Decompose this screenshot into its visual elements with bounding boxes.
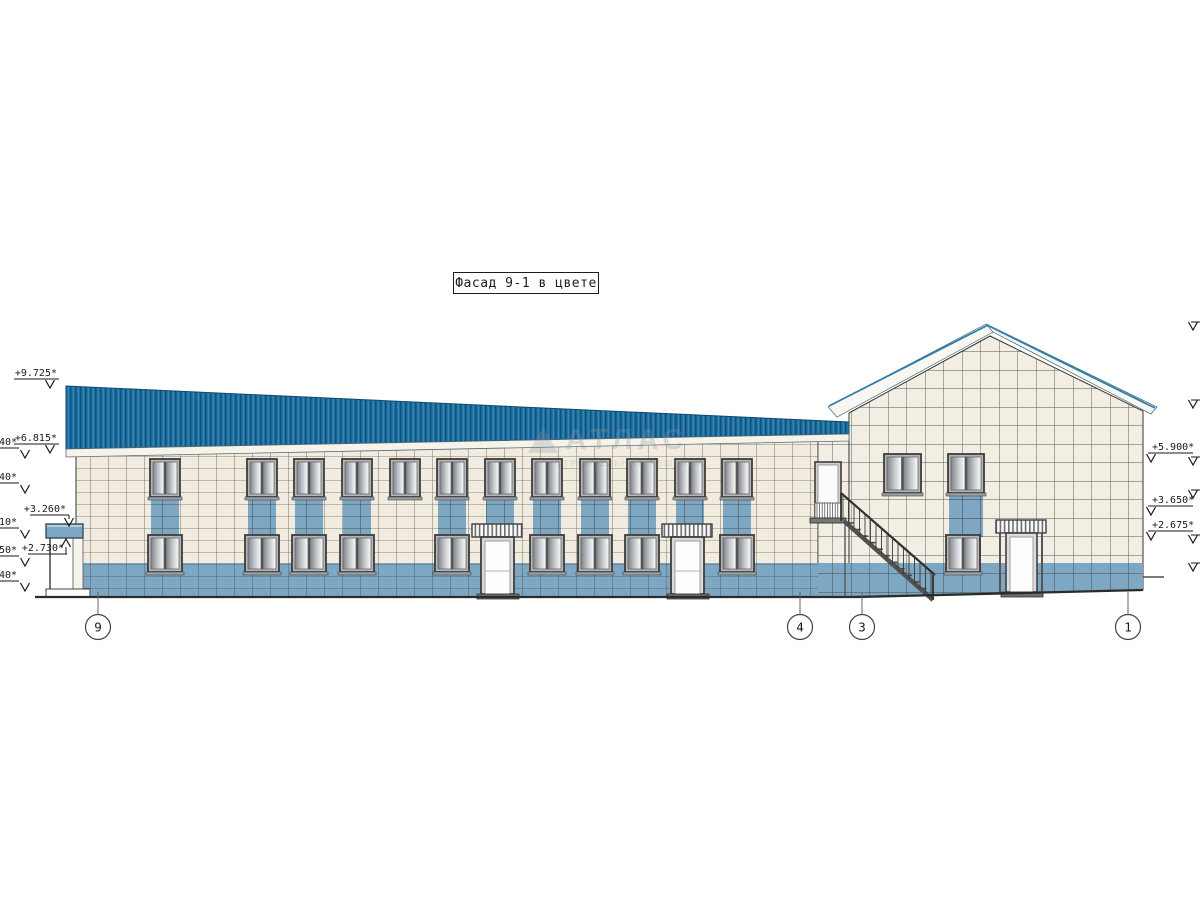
window-sill bbox=[388, 497, 422, 500]
elevation-mark-fragment bbox=[1189, 400, 1200, 408]
axis-bubble: 3 bbox=[850, 592, 875, 640]
window-sash bbox=[297, 462, 308, 494]
window-sash bbox=[440, 462, 451, 494]
window-sash bbox=[310, 462, 321, 494]
window-sill bbox=[433, 572, 471, 575]
window-mullion bbox=[356, 538, 358, 570]
upper-window bbox=[483, 459, 517, 500]
window-sash bbox=[964, 538, 977, 569]
axis-bubble: 4 bbox=[788, 592, 813, 640]
level-arrow-icon bbox=[21, 530, 30, 538]
door-leaf bbox=[485, 541, 510, 594]
window-sash bbox=[153, 462, 164, 494]
lower-window bbox=[623, 535, 661, 575]
window-sill bbox=[528, 572, 566, 575]
axis-label: 4 bbox=[796, 620, 804, 635]
axis-bubble: 1 bbox=[1116, 592, 1141, 640]
window-mullion bbox=[261, 462, 263, 495]
window-mullion bbox=[641, 538, 643, 570]
window-mullion bbox=[962, 538, 964, 570]
window-sill bbox=[946, 493, 986, 496]
window-sash bbox=[887, 457, 902, 490]
upper-window bbox=[340, 459, 374, 500]
level-arrow-icon bbox=[21, 558, 30, 566]
window-mullion bbox=[308, 538, 310, 570]
window-sash bbox=[548, 462, 559, 494]
window-sash bbox=[166, 462, 177, 494]
window-sash bbox=[295, 538, 308, 569]
window-sash bbox=[263, 462, 274, 494]
window-sash bbox=[904, 457, 919, 490]
elevation-mark: +3.650* bbox=[1147, 495, 1195, 515]
window-sash bbox=[345, 462, 356, 494]
platform-rail-panel bbox=[815, 503, 841, 519]
window-sash bbox=[581, 538, 594, 569]
upper-window bbox=[388, 459, 422, 500]
window-sill bbox=[146, 572, 184, 575]
window-mullion bbox=[594, 538, 596, 570]
level-arrow-icon bbox=[1147, 507, 1156, 515]
elevation-label: 10* bbox=[0, 517, 17, 528]
stair-door-leaf bbox=[818, 465, 838, 503]
window-sill bbox=[338, 572, 376, 575]
window-mullion bbox=[451, 462, 453, 495]
window-sash bbox=[488, 462, 499, 494]
window-sash bbox=[501, 462, 512, 494]
axis-bubble: 9 bbox=[86, 592, 111, 640]
elevation-label: +2.675* bbox=[1152, 520, 1194, 531]
level-arrow-icon bbox=[1147, 454, 1156, 462]
window-mullion bbox=[546, 462, 548, 495]
door-leaf bbox=[1010, 537, 1033, 592]
window-sill bbox=[530, 497, 564, 500]
window-mullion bbox=[736, 538, 738, 570]
upper-window bbox=[530, 459, 564, 500]
level-arrow-icon bbox=[21, 450, 30, 458]
window-mullion bbox=[689, 462, 691, 495]
lower-window bbox=[718, 535, 756, 575]
upper-window bbox=[245, 459, 279, 500]
window-mullion bbox=[164, 462, 166, 495]
window-sash bbox=[438, 538, 451, 569]
window-mullion bbox=[499, 462, 501, 495]
window-sash bbox=[949, 538, 962, 569]
window-mullion bbox=[965, 457, 967, 491]
level-arrow-icon bbox=[21, 485, 30, 493]
window-sash bbox=[248, 538, 261, 569]
window-sill bbox=[243, 572, 281, 575]
elevation-label: +6.815* bbox=[15, 433, 57, 444]
upper-window bbox=[673, 459, 707, 500]
facade-drawing: +9.725*+6.815*40*40*10*50*40*+5.900*+3.6… bbox=[0, 0, 1200, 900]
elevation-label: +5.900* bbox=[1152, 442, 1194, 453]
level-arrow-icon bbox=[46, 445, 55, 453]
elevation-mark-fragment: 40* bbox=[0, 472, 30, 493]
window-sill bbox=[673, 497, 707, 500]
window-sill bbox=[718, 572, 756, 575]
upper-window bbox=[435, 459, 469, 500]
level-arrow-icon bbox=[1147, 532, 1156, 540]
window-sash bbox=[738, 538, 751, 569]
lower-window bbox=[290, 535, 328, 575]
window-sash bbox=[151, 538, 164, 569]
window-sash bbox=[533, 538, 546, 569]
drawing-title: Фасад 9-1 в цвете bbox=[453, 272, 599, 294]
axis-label: 9 bbox=[94, 620, 102, 635]
door-canopy bbox=[996, 520, 1046, 533]
level-arrow-icon bbox=[1189, 400, 1198, 408]
level-arrow-icon bbox=[1189, 322, 1198, 330]
gable-lower-window bbox=[944, 535, 982, 575]
elevation-mark: +3.260* bbox=[24, 504, 74, 526]
elevation-mark-fragment bbox=[1189, 457, 1200, 465]
window-sash bbox=[643, 462, 654, 494]
elevation-mark: +5.900* bbox=[1147, 442, 1195, 462]
level-arrow-icon bbox=[1189, 535, 1198, 543]
door-leaf bbox=[675, 541, 700, 594]
upper-window bbox=[148, 459, 182, 500]
window-sill bbox=[882, 493, 923, 496]
window-sash bbox=[967, 457, 981, 490]
elevation-label: 40* bbox=[0, 472, 17, 483]
elevation-mark-fragment bbox=[1189, 535, 1200, 543]
window-sill bbox=[148, 497, 182, 500]
window-sash bbox=[583, 462, 594, 494]
window-sill bbox=[578, 497, 612, 500]
upper-window bbox=[625, 459, 659, 500]
window-sill bbox=[290, 572, 328, 575]
window-sash bbox=[166, 538, 179, 569]
window-sash bbox=[628, 538, 641, 569]
elevation-label: +2.730* bbox=[22, 543, 64, 554]
elevation-label: +3.260* bbox=[24, 504, 66, 515]
level-arrow-icon bbox=[1189, 457, 1198, 465]
window-sill bbox=[340, 497, 374, 500]
window-sash bbox=[406, 462, 417, 494]
window-sash bbox=[250, 462, 261, 494]
window-sash bbox=[738, 462, 749, 494]
porch-step bbox=[46, 589, 90, 597]
lower-window bbox=[528, 535, 566, 575]
window-sill bbox=[245, 497, 279, 500]
window-mullion bbox=[902, 457, 904, 491]
elevation-mark: +9.725* bbox=[14, 368, 59, 388]
window-sash bbox=[453, 538, 466, 569]
axis-label: 3 bbox=[858, 620, 866, 635]
elevation-mark: +2.675* bbox=[1147, 520, 1195, 540]
window-sill bbox=[576, 572, 614, 575]
window-sill bbox=[292, 497, 326, 500]
gable-upper-window bbox=[882, 454, 923, 496]
window-mullion bbox=[546, 538, 548, 570]
window-mullion bbox=[164, 538, 166, 570]
elevation-mark-fragment bbox=[1189, 563, 1200, 571]
window-sash bbox=[548, 538, 561, 569]
window-sash bbox=[358, 538, 371, 569]
lower-window bbox=[338, 535, 376, 575]
lower-window bbox=[576, 535, 614, 575]
window-sash bbox=[453, 462, 464, 494]
window-sash bbox=[263, 538, 276, 569]
elevation-mark: +2.730* bbox=[22, 539, 71, 554]
elevation-label: 40* bbox=[0, 570, 17, 581]
window-sash bbox=[630, 462, 641, 494]
window-mullion bbox=[451, 538, 453, 570]
elevation-label: +3.650* bbox=[1152, 495, 1194, 506]
window-sash bbox=[358, 462, 369, 494]
window-sash bbox=[596, 538, 609, 569]
window-sash bbox=[723, 538, 736, 569]
axis-label: 1 bbox=[1124, 620, 1132, 635]
elevation-mark-fragment: 40* bbox=[0, 570, 30, 591]
window-sash bbox=[596, 462, 607, 494]
lower-window bbox=[243, 535, 281, 575]
window-sash bbox=[393, 462, 404, 494]
elevation-mark-fragment: 10* bbox=[0, 517, 30, 538]
window-sash bbox=[343, 538, 356, 569]
window-sill bbox=[623, 572, 661, 575]
window-sash bbox=[535, 462, 546, 494]
elevation-label: 40* bbox=[0, 437, 17, 448]
window-mullion bbox=[736, 462, 738, 495]
window-mullion bbox=[261, 538, 263, 570]
window-sash bbox=[643, 538, 656, 569]
door-canopy bbox=[472, 524, 522, 537]
window-mullion bbox=[594, 462, 596, 495]
window-sill bbox=[625, 497, 659, 500]
level-arrow-icon bbox=[46, 380, 55, 388]
window-sill bbox=[483, 497, 517, 500]
window-sill bbox=[944, 572, 982, 575]
window-sill bbox=[435, 497, 469, 500]
window-sash bbox=[678, 462, 689, 494]
window-mullion bbox=[308, 462, 310, 495]
window-mullion bbox=[356, 462, 358, 495]
elevation-label: 50* bbox=[0, 545, 17, 556]
upper-window bbox=[720, 459, 754, 500]
upper-window bbox=[578, 459, 612, 500]
lower-window bbox=[146, 535, 184, 575]
window-mullion bbox=[641, 462, 643, 495]
door-canopy bbox=[662, 524, 712, 537]
gable-upper-window bbox=[946, 454, 986, 496]
entry-pier bbox=[73, 538, 83, 596]
window-sash bbox=[951, 457, 965, 490]
window-sill bbox=[720, 497, 754, 500]
window-mullion bbox=[404, 462, 406, 495]
elevation-label: +9.725* bbox=[15, 368, 57, 379]
window-sash bbox=[310, 538, 323, 569]
lower-window bbox=[433, 535, 471, 575]
level-arrow-icon bbox=[1189, 563, 1198, 571]
elevation-mark-fragment bbox=[1189, 322, 1200, 330]
window-sash bbox=[691, 462, 702, 494]
upper-window bbox=[292, 459, 326, 500]
window-sash bbox=[725, 462, 736, 494]
level-arrow-icon bbox=[21, 583, 30, 591]
